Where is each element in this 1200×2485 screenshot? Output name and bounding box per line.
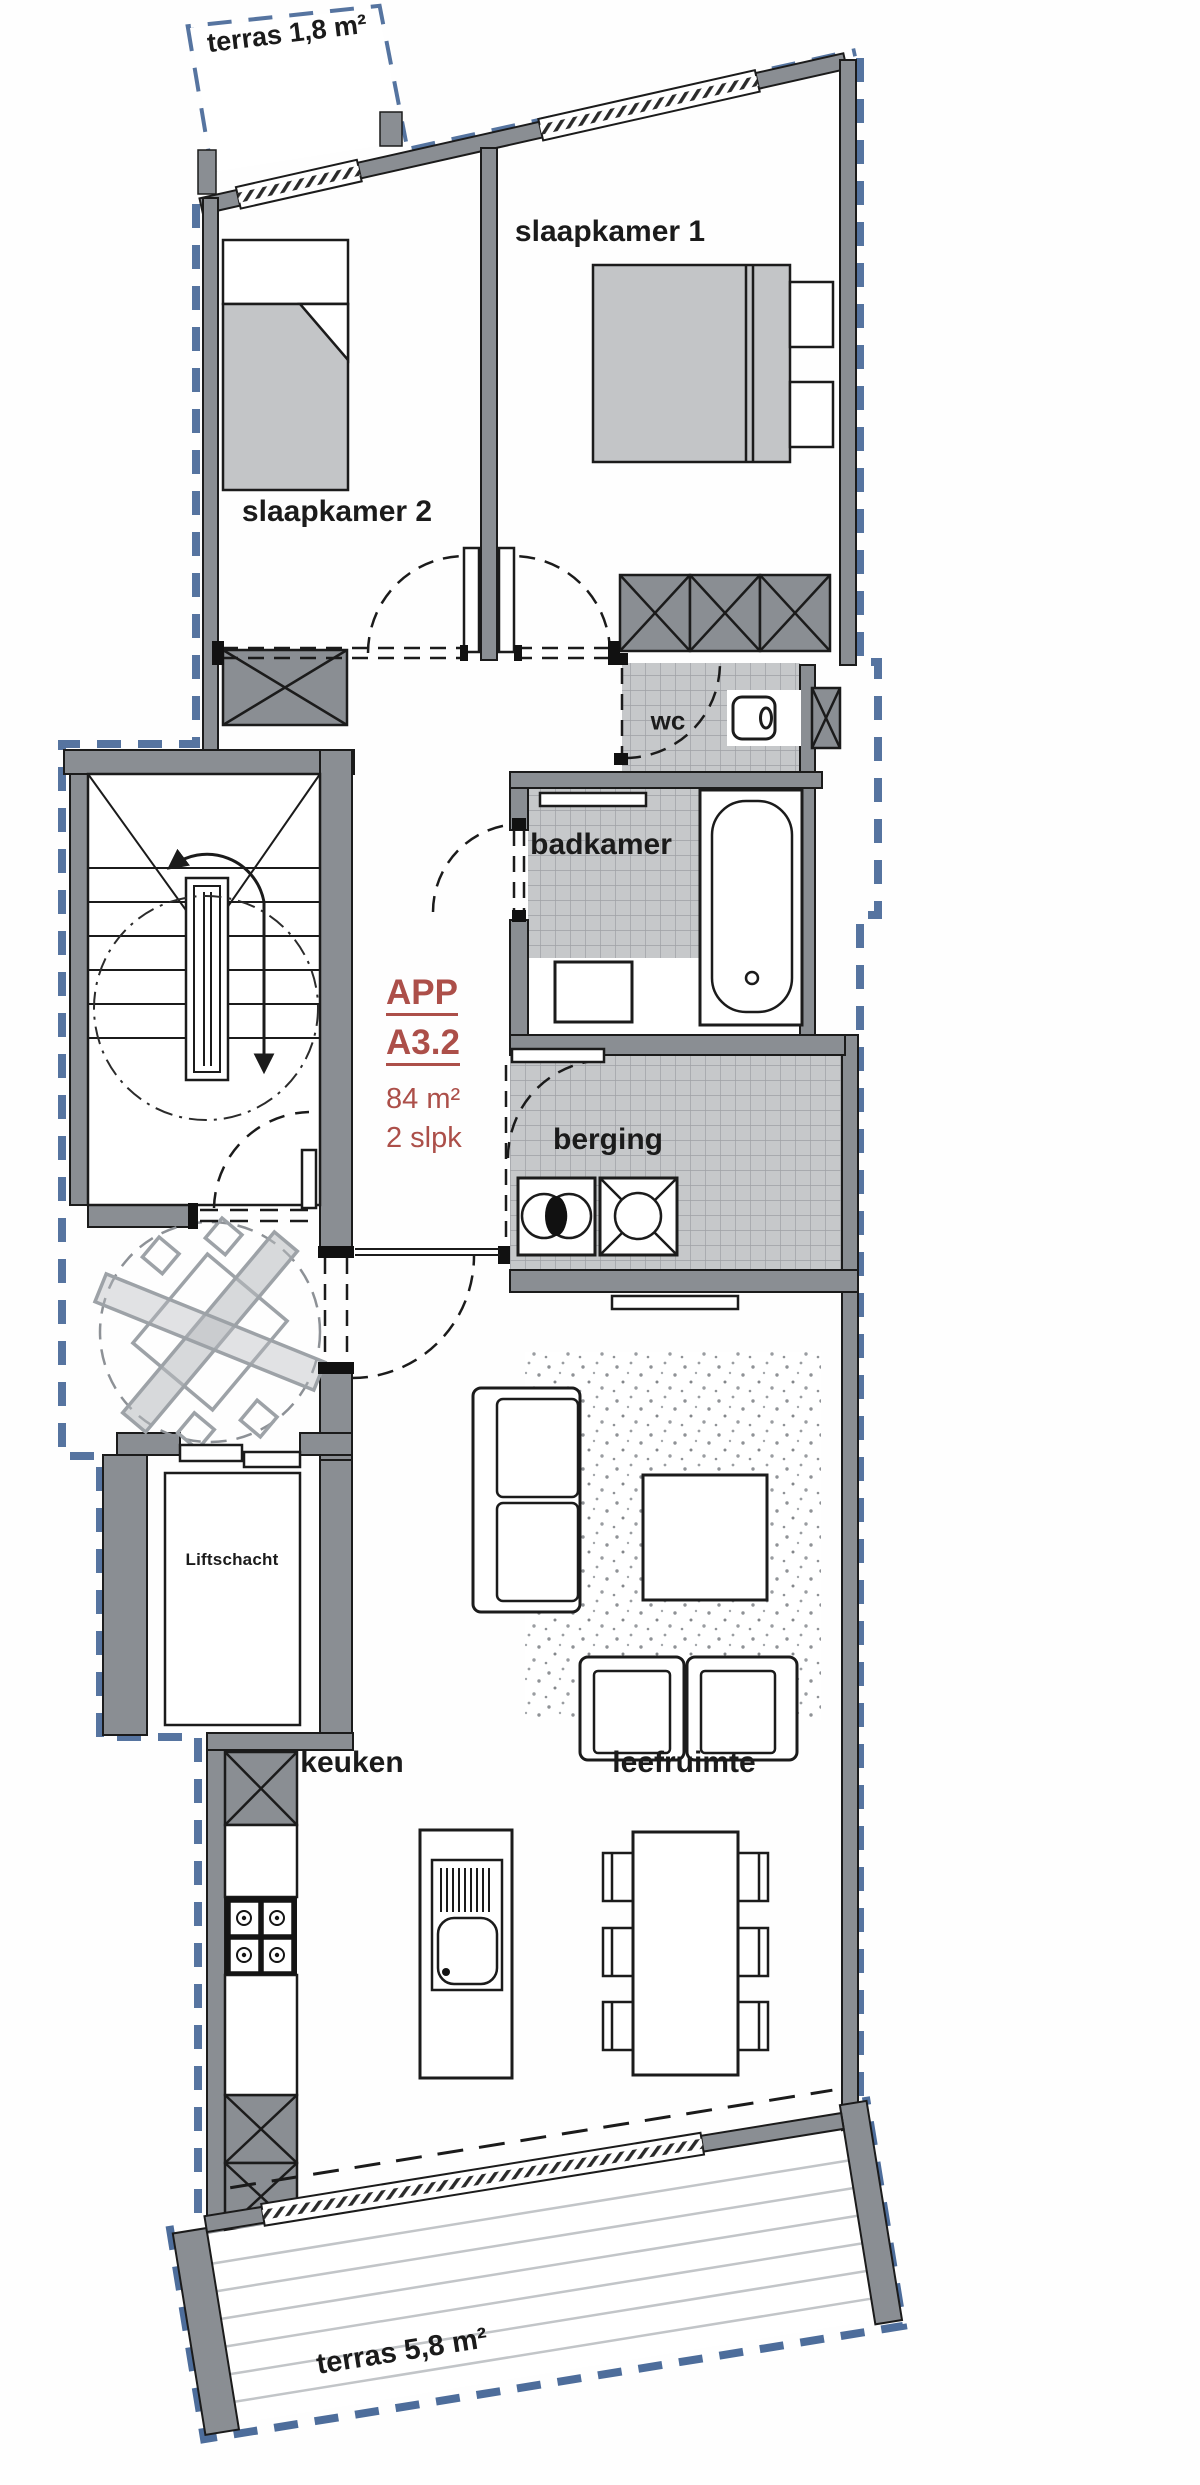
bath-west-wall-b (510, 920, 528, 1035)
washing-machine (518, 1178, 595, 1255)
room-label-living: leefruimte (612, 1746, 755, 1780)
room-label-wc: wc (651, 706, 686, 737)
unit-area: 84 m² (386, 1085, 462, 1114)
terrace-top-sliding-door (236, 160, 362, 209)
bed-double-bedroom1 (593, 265, 833, 462)
unit-number: A3.2 (386, 1025, 460, 1066)
unit-info-card: APP A3.2 84 m² 2 slpk (386, 975, 462, 1153)
floor-plan-page: terras 1,8 m² slaapkamer 1 slaapkamer 2 … (0, 0, 1200, 2485)
room-label-kitchen: keuken (300, 1746, 403, 1780)
lift-door-leaf-left (180, 1445, 242, 1461)
stove (225, 1897, 297, 1975)
stairwell-top-wall (64, 750, 354, 774)
unit-code: APP (386, 975, 458, 1016)
liftshaft-right-wall (320, 1460, 352, 1750)
wc-bath-divider (510, 772, 822, 788)
kitchen-island (420, 1830, 512, 2078)
dining-set (603, 1832, 768, 2075)
coffee-table (643, 1475, 767, 1600)
stairwell-left-wall (70, 774, 88, 1205)
unit-bedrooms: 2 slpk (386, 1124, 462, 1153)
storage-living-divider (510, 1270, 858, 1292)
shaft-hall-left (223, 650, 347, 725)
shaft-right-of-wc (812, 688, 840, 748)
bedroom-divider-wall (481, 148, 497, 660)
room-label-bathroom: badkamer (530, 828, 672, 862)
bath-door-swing (433, 824, 521, 912)
bedroom1-door-swing (513, 556, 610, 653)
stair-door-leaf (302, 1150, 316, 1208)
bathtub (700, 790, 802, 1025)
left-wall-upper (203, 198, 218, 756)
bathroom-sink (555, 962, 632, 1022)
stair-lobby-divider (88, 1205, 193, 1227)
bedroom2-door-swing (368, 556, 465, 653)
bedroom1-window (538, 70, 759, 140)
entry-door-line (325, 1258, 347, 1362)
lobby-bottom-wall-right (300, 1433, 352, 1455)
bed-single-bedroom2 (223, 240, 348, 490)
armchairs (580, 1657, 797, 1760)
bedroom2-door-leaf (464, 548, 479, 652)
hall-living-thin-wall (355, 1249, 500, 1255)
staircase (88, 774, 320, 1208)
bath-door-line (514, 830, 524, 920)
living-window-sill (612, 1296, 738, 1309)
lift-shaft (165, 1445, 300, 1725)
sofa (473, 1388, 580, 1612)
shaft-above-wc (620, 575, 830, 651)
room-label-bedroom2: slaapkamer 2 (242, 495, 432, 529)
shaft-kitchen-top (225, 1752, 297, 1825)
floor-plan-drawing (0, 0, 1200, 2485)
toilet (727, 690, 801, 746)
lobby-bottom-wall-left (117, 1433, 180, 1455)
right-wall-lower (842, 1035, 858, 2160)
lift-car (165, 1473, 300, 1725)
lift-door-leaf-right (244, 1452, 300, 1467)
dryer (600, 1178, 677, 1255)
dining-chairs-right (738, 1853, 768, 2050)
dining-chairs-left (603, 1853, 633, 2050)
right-wall-upper (840, 60, 856, 665)
bedroom1-door-leaf (499, 548, 514, 652)
lobby-door-jamb (188, 1203, 198, 1229)
corridor-open-line-right (516, 648, 612, 658)
dining-table (633, 1832, 738, 2075)
stairwell-right-wall (320, 750, 352, 1255)
liftshaft-left-wall (103, 1455, 147, 1735)
room-label-bedroom1: slaapkamer 1 (515, 215, 705, 249)
entry-door-swing (352, 1256, 474, 1378)
lobby-door-dashes (200, 1210, 314, 1221)
room-label-storage: berging (553, 1123, 663, 1157)
bathroom-shelf (540, 793, 646, 806)
kitchen-left-wall (207, 1750, 225, 2240)
storage-door-leaf (512, 1049, 604, 1062)
room-label-lift-shaft: Liftschacht (186, 1550, 279, 1570)
